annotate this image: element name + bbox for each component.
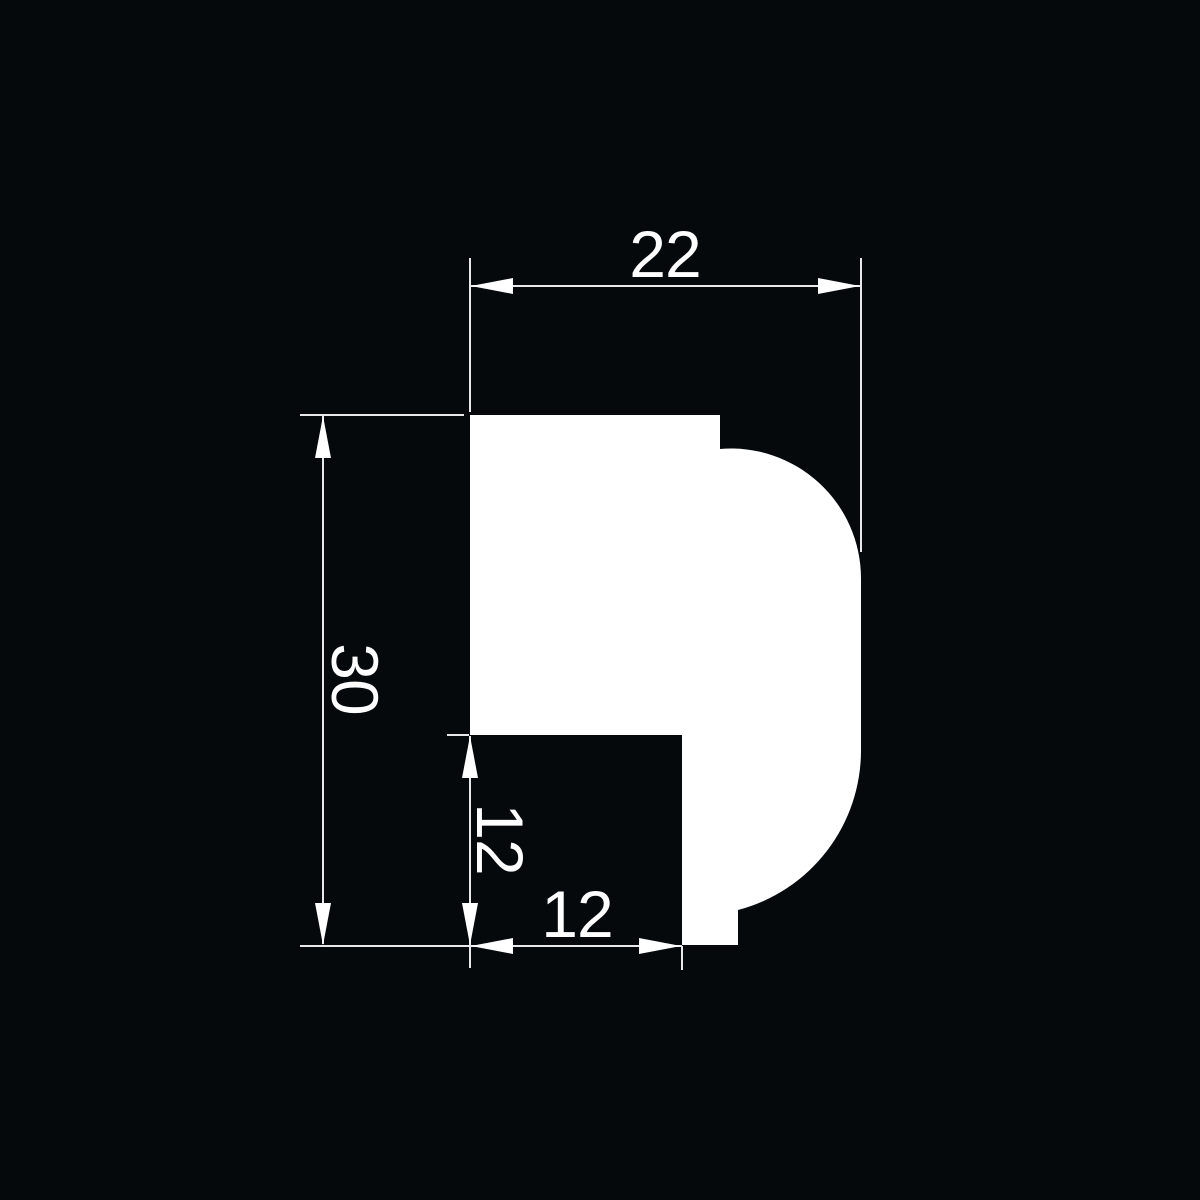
drawing-area: 22 30 12 12	[0, 0, 1200, 1200]
dimension-label-inner-height: 12	[463, 803, 537, 874]
technical-drawing-svg: 22 30 12 12	[0, 0, 1200, 1200]
dimension-label-left-height: 30	[318, 643, 392, 714]
dimension-label-top-width: 22	[629, 217, 700, 291]
dimension-label-inner-width: 12	[541, 877, 612, 951]
